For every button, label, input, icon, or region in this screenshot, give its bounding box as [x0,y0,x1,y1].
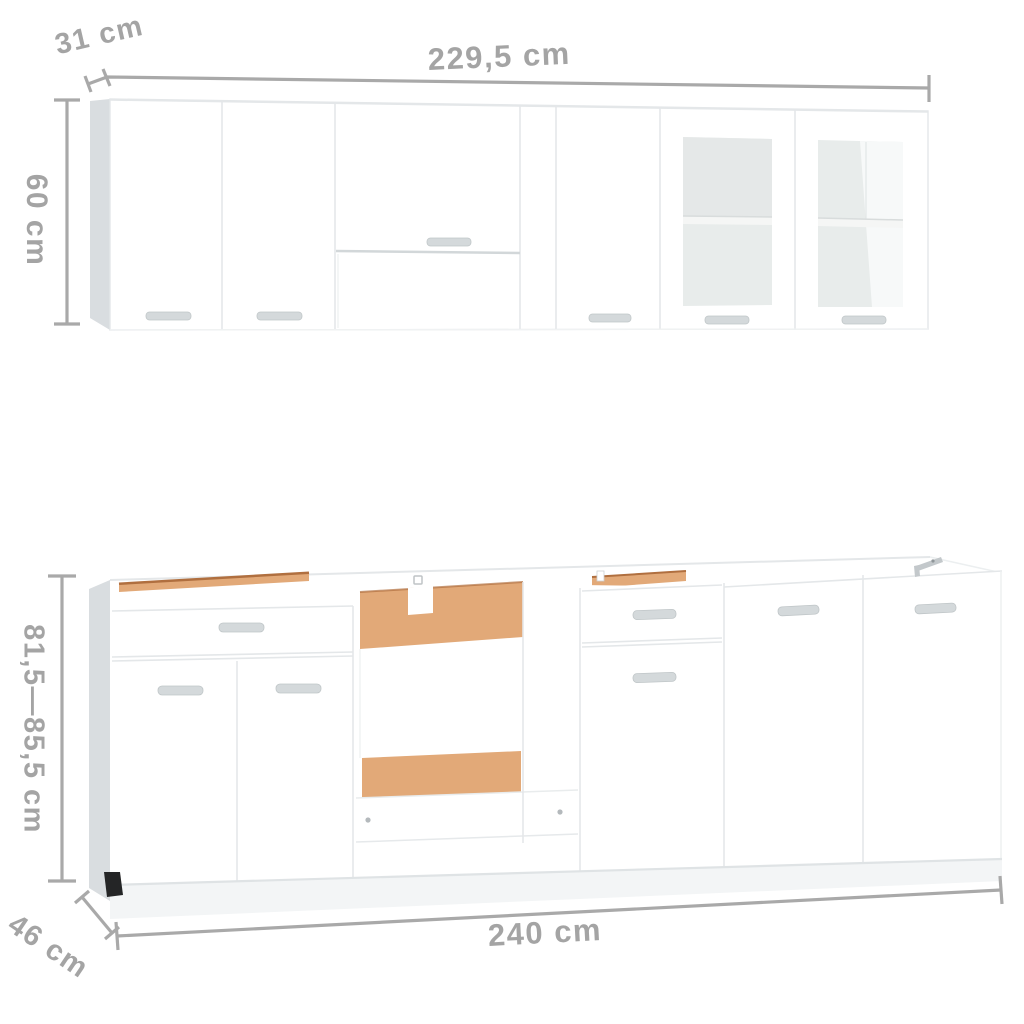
door-handle [158,686,203,695]
base-cabinet-faces [110,571,1002,886]
shelf-clip [597,571,604,581]
dim-label-wall-width: 229,5 cm [427,36,571,78]
door-handle [427,238,471,246]
wall-bottom-shadow [110,329,928,330]
door-handle [705,316,749,324]
screw-hole [365,817,370,822]
kitchen-cabinet-illustration [0,0,1024,1024]
door-handle [633,672,676,682]
dim-line-wall-width [88,77,929,88]
door-handle [146,312,191,320]
hood-niche-opening [337,254,519,328]
screw-hole [557,809,562,814]
door-handle [915,603,956,614]
wall-cabinet-row [90,99,928,330]
base-cabinet-row [89,557,1002,919]
door-handle [778,605,819,616]
adjustable-foot [104,872,123,897]
dim-label-base-height: 81,5—85,5 cm [17,624,50,834]
bracket-screw [931,559,934,562]
drawer-handle [633,609,676,619]
dim-label-base-width: 240 cm [487,912,603,954]
mounting-tab [408,586,433,615]
shelf-edge [683,216,772,217]
glass-upper-tint [683,137,772,217]
base-side-panel [89,580,110,901]
glass-door-cabinet-2 [818,140,903,307]
dim-tick [1000,876,1002,904]
door-handle [589,314,631,322]
door-handle [276,684,321,693]
metal-bracket [914,565,920,577]
wall-side-panel [90,99,110,330]
door-handle [842,316,886,324]
glass-door-cabinet-1 [683,137,772,306]
drawer-handle [219,623,264,632]
dim-line-base-depth [82,897,112,933]
dim-label-wall-height: 60 cm [19,174,53,267]
dim-tick [116,922,118,950]
product-dimension-image: 31 cm 229,5 cm 60 cm 81,5—85,5 cm 46 cm … [0,0,1024,1024]
oven-base-platform [356,790,578,842]
door-handle [257,312,302,320]
